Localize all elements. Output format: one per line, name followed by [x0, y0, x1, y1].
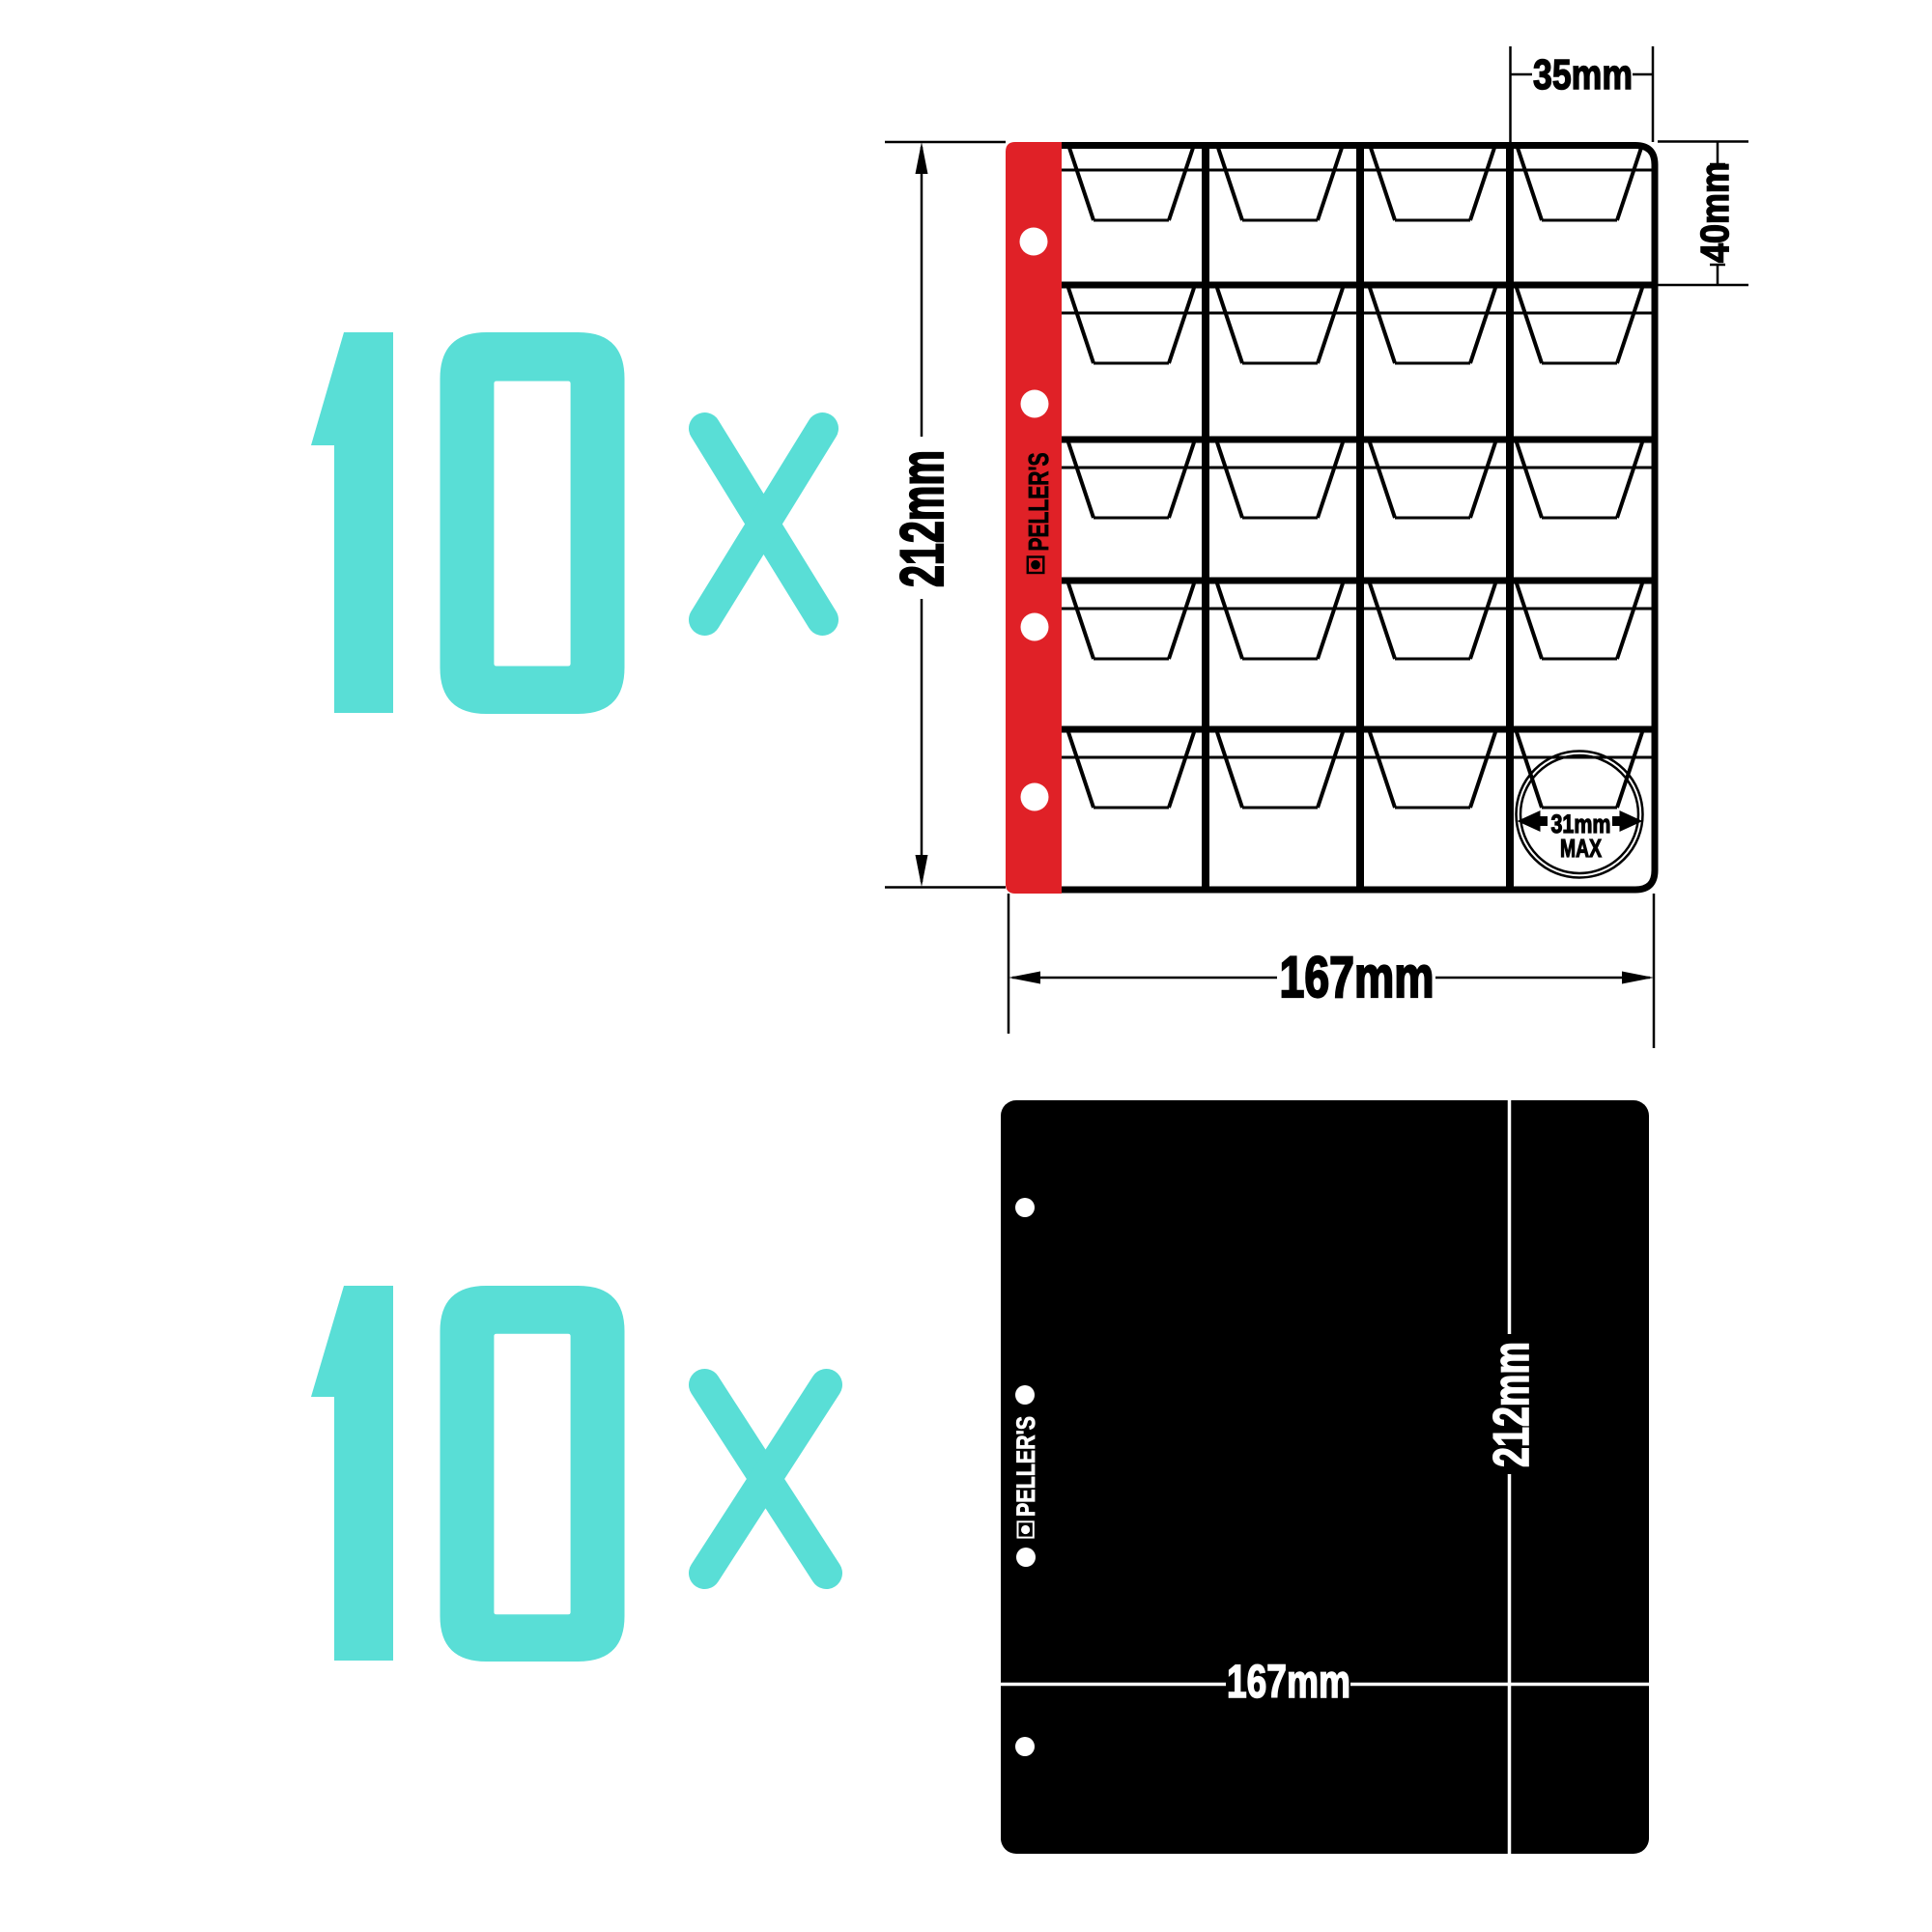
svg-text:167mm: 167mm: [1280, 945, 1435, 1009]
svg-text:212mm: 212mm: [1484, 1342, 1540, 1467]
svg-text:212mm: 212mm: [889, 450, 956, 587]
svg-text:MAX: MAX: [1560, 834, 1602, 863]
svg-text:40mm: 40mm: [1692, 162, 1737, 263]
svg-text:PELLER'S: PELLER'S: [1011, 1416, 1040, 1517]
svg-text:167mm: 167mm: [1227, 1657, 1350, 1708]
svg-text:35mm: 35mm: [1533, 51, 1633, 99]
svg-text:PELLER'S: PELLER'S: [1024, 453, 1055, 552]
